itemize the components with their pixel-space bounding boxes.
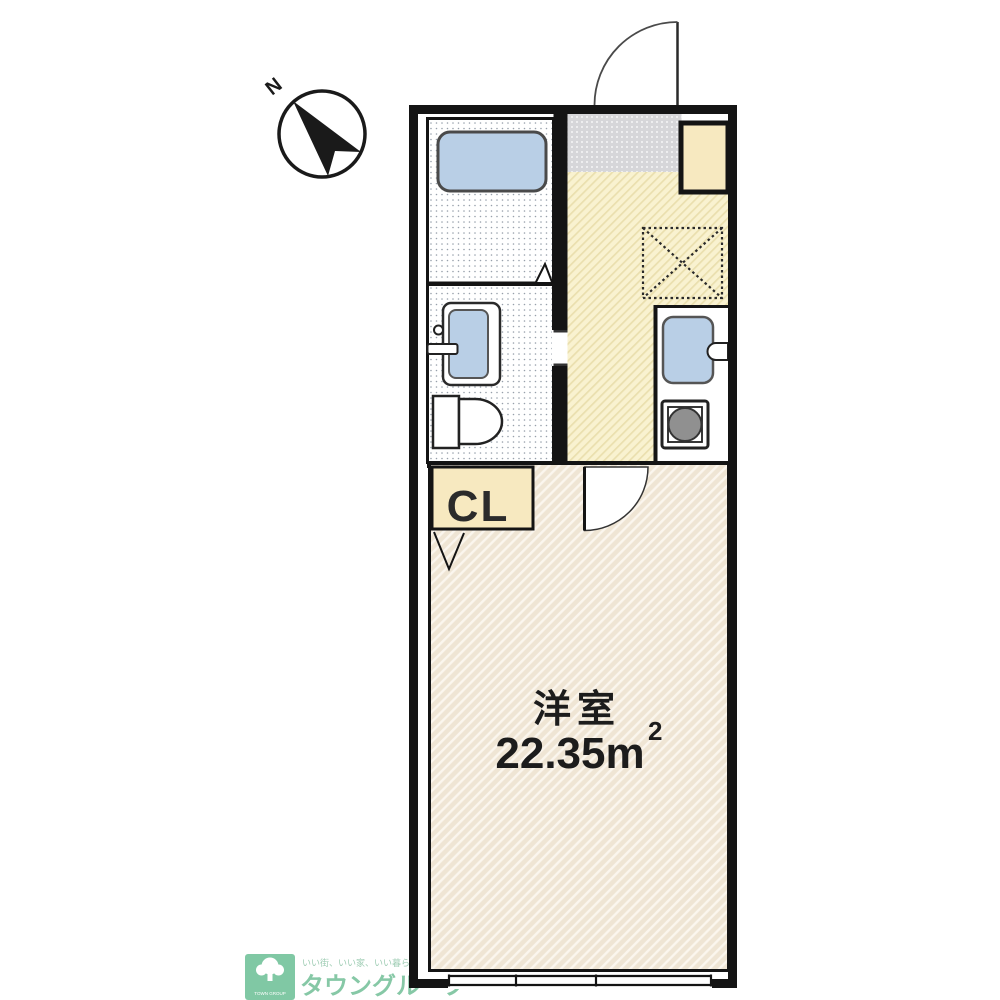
compass: N — [262, 74, 365, 177]
entrance-floor — [568, 114, 682, 172]
north-label: N — [262, 74, 287, 100]
room-area-superscript: 2 — [648, 716, 662, 746]
toilet-icon — [433, 396, 502, 448]
kitchen-sink-icon — [663, 317, 713, 383]
entrance-door-swing — [595, 22, 678, 105]
logo-mark-caption: TOWN GROUP — [254, 991, 285, 996]
kitchen-and-entrance — [568, 114, 729, 462]
entrance-door-arc — [595, 22, 678, 105]
kitchen-counter — [654, 305, 728, 462]
washroom-door-opening — [552, 330, 569, 366]
closet-label: CL — [447, 482, 510, 531]
bathroom — [428, 119, 554, 288]
room-area-label: 22.35m — [495, 729, 644, 778]
room-name-label: 洋室 — [533, 688, 621, 731]
stove-icon — [662, 401, 708, 448]
washroom — [428, 285, 554, 463]
floorplan-page: TOWN GROUP いい街、いい家、いい暮らし タウングループ N — [0, 0, 1000, 1000]
kitchen-faucet-icon — [708, 343, 728, 360]
logo-tagline: いい街、いい家、いい暮らし — [302, 957, 419, 968]
bathtub-icon — [438, 132, 546, 191]
shoe-cabinet — [681, 123, 728, 192]
corridor-wall — [552, 114, 569, 462]
bottom-window-icon — [448, 972, 712, 989]
floorplan-drawing: TOWN GROUP いい街、いい家、いい暮らし タウングループ N — [0, 0, 1000, 1000]
main-room: CL 洋室 22.35m 2 — [430, 464, 729, 971]
